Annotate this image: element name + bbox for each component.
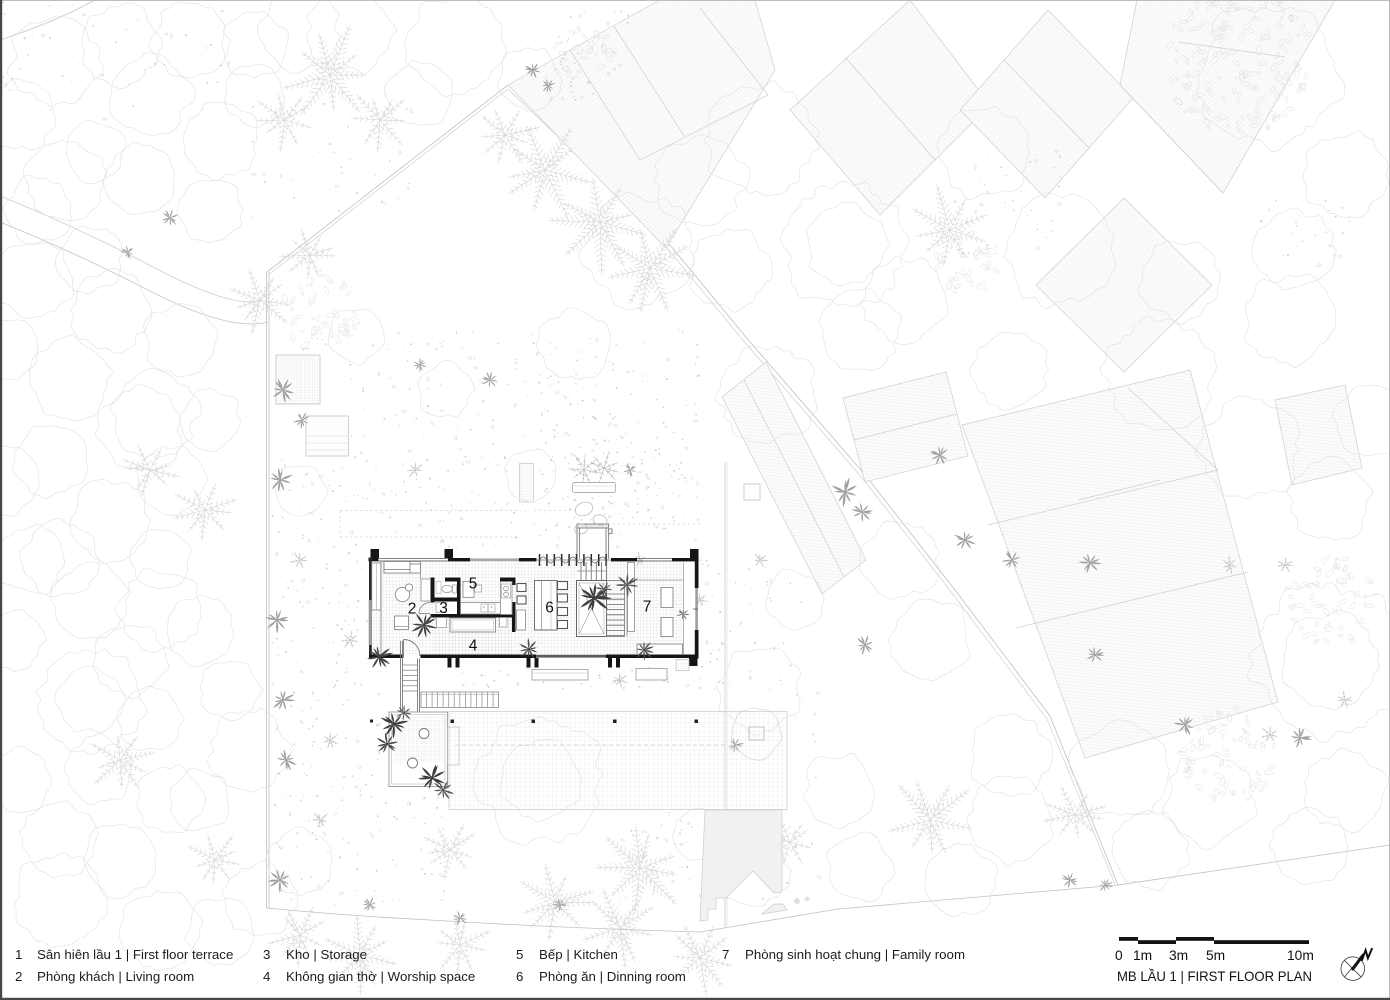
svg-text:2: 2 [408, 601, 417, 618]
svg-text:Bếp | Kitchen: Bếp | Kitchen [539, 947, 618, 962]
svg-text:3: 3 [263, 947, 270, 962]
svg-text:6: 6 [516, 969, 523, 984]
svg-text:7: 7 [722, 947, 729, 962]
svg-text:7: 7 [643, 599, 652, 616]
svg-text:5: 5 [469, 576, 478, 593]
svg-text:Phòng khách | Living room: Phòng khách | Living room [37, 969, 194, 984]
svg-text:5: 5 [516, 947, 523, 962]
svg-text:3m: 3m [1169, 948, 1188, 963]
svg-text:Phòng ăn | Dinning room: Phòng ăn | Dinning room [539, 969, 686, 984]
svg-text:Không gian thờ | Worship space: Không gian thờ | Worship space [286, 969, 475, 984]
svg-text:3: 3 [439, 600, 448, 617]
svg-text:6: 6 [545, 600, 554, 617]
svg-text:Sân hiên lầu 1 | First floor t: Sân hiên lầu 1 | First floor terrace [37, 947, 233, 962]
svg-text:5m: 5m [1206, 948, 1225, 963]
svg-text:Phòng sinh hoạt chung | Family: Phòng sinh hoạt chung | Family room [745, 947, 965, 962]
svg-text:2: 2 [15, 969, 22, 984]
svg-text:1m: 1m [1133, 948, 1152, 963]
svg-text:1: 1 [15, 947, 22, 962]
svg-text:4: 4 [469, 638, 478, 655]
svg-text:0: 0 [1115, 948, 1123, 963]
svg-text:MB LẦU 1 | FIRST FLOOR PLAN: MB LẦU 1 | FIRST FLOOR PLAN [1117, 968, 1312, 984]
svg-text:Kho | Storage: Kho | Storage [286, 947, 367, 962]
svg-text:4: 4 [263, 969, 270, 984]
svg-text:10m: 10m [1287, 948, 1314, 963]
